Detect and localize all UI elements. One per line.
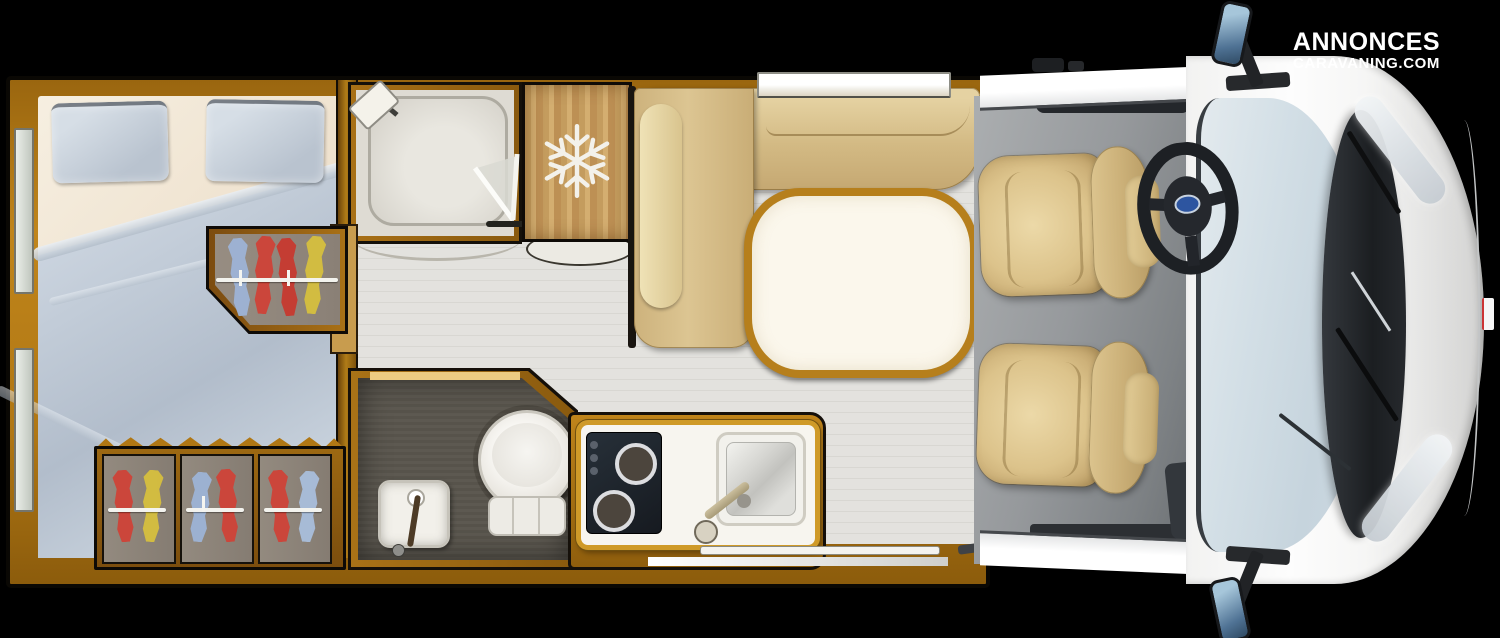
toilet-base-seam xyxy=(538,498,540,534)
clothes-hanger-icon xyxy=(287,270,290,286)
closet-cell xyxy=(180,454,254,564)
toilet xyxy=(478,410,576,510)
toilet-lid xyxy=(492,423,562,487)
burner xyxy=(593,490,635,532)
roof-vent xyxy=(1068,61,1084,71)
seat-seams xyxy=(1004,170,1084,289)
faucet-head xyxy=(737,494,751,508)
burner xyxy=(615,443,657,485)
two-burner-hob xyxy=(586,432,662,534)
washbasin xyxy=(378,480,450,548)
site-logo: ANNONCES CARAVANING.COM xyxy=(1293,30,1440,71)
hob-knob xyxy=(590,454,598,462)
hanger-rail xyxy=(186,508,244,512)
brand-line-2: CARAVANING.COM xyxy=(1293,56,1440,71)
body-skirt xyxy=(648,557,948,566)
sink-basin xyxy=(726,442,796,516)
toilet-base xyxy=(488,496,566,536)
hanger-rail xyxy=(216,278,338,282)
hanging-garment xyxy=(112,470,136,543)
hanging-garment xyxy=(188,471,213,542)
fridge xyxy=(522,82,632,242)
rear-side-window xyxy=(14,128,34,294)
clothes-hanger-icon xyxy=(202,496,205,512)
hanging-garment xyxy=(215,468,240,542)
seat-cushion xyxy=(978,153,1109,297)
faucet-pivot xyxy=(694,520,718,544)
kitchen-sink xyxy=(716,432,806,526)
rear-side-window xyxy=(14,348,34,512)
hob-knob xyxy=(590,441,598,449)
closet-cell xyxy=(258,454,332,564)
toilet-base-seam xyxy=(512,498,514,534)
roof-vent xyxy=(1032,58,1064,72)
dinette-table xyxy=(744,188,978,378)
motorhome-floorplan: ANNONCES CARAVANING.COM xyxy=(0,0,1500,638)
hanging-garment xyxy=(296,471,320,543)
hanger-rail xyxy=(108,508,166,512)
hanging-garment xyxy=(268,469,293,542)
pillow-left xyxy=(51,100,169,183)
hanging-garment xyxy=(140,470,164,543)
closet-cell xyxy=(102,454,176,564)
bottom-wall-window xyxy=(700,546,940,555)
armrest xyxy=(640,104,682,308)
seat-headrest xyxy=(1122,372,1159,465)
front-badge xyxy=(1482,298,1494,330)
faucet-knob xyxy=(392,544,405,557)
top-wall-window xyxy=(757,72,951,98)
seat-cushion xyxy=(976,343,1107,487)
seat-seams xyxy=(1002,360,1082,479)
hob-knob xyxy=(590,467,598,475)
bathroom-door-trim xyxy=(370,372,520,380)
brand-line-1: ANNONCES xyxy=(1293,30,1440,56)
hanger-rail xyxy=(264,508,322,512)
clothes-hanger-icon xyxy=(239,270,242,286)
pillow-right xyxy=(205,99,324,183)
passenger-seat xyxy=(975,337,1166,495)
bottom-closets xyxy=(94,446,346,570)
snowflake-icon xyxy=(540,116,614,206)
bumper-seam xyxy=(1448,120,1480,516)
steering-wheel-icon xyxy=(1129,137,1250,282)
bathroom xyxy=(348,368,578,570)
